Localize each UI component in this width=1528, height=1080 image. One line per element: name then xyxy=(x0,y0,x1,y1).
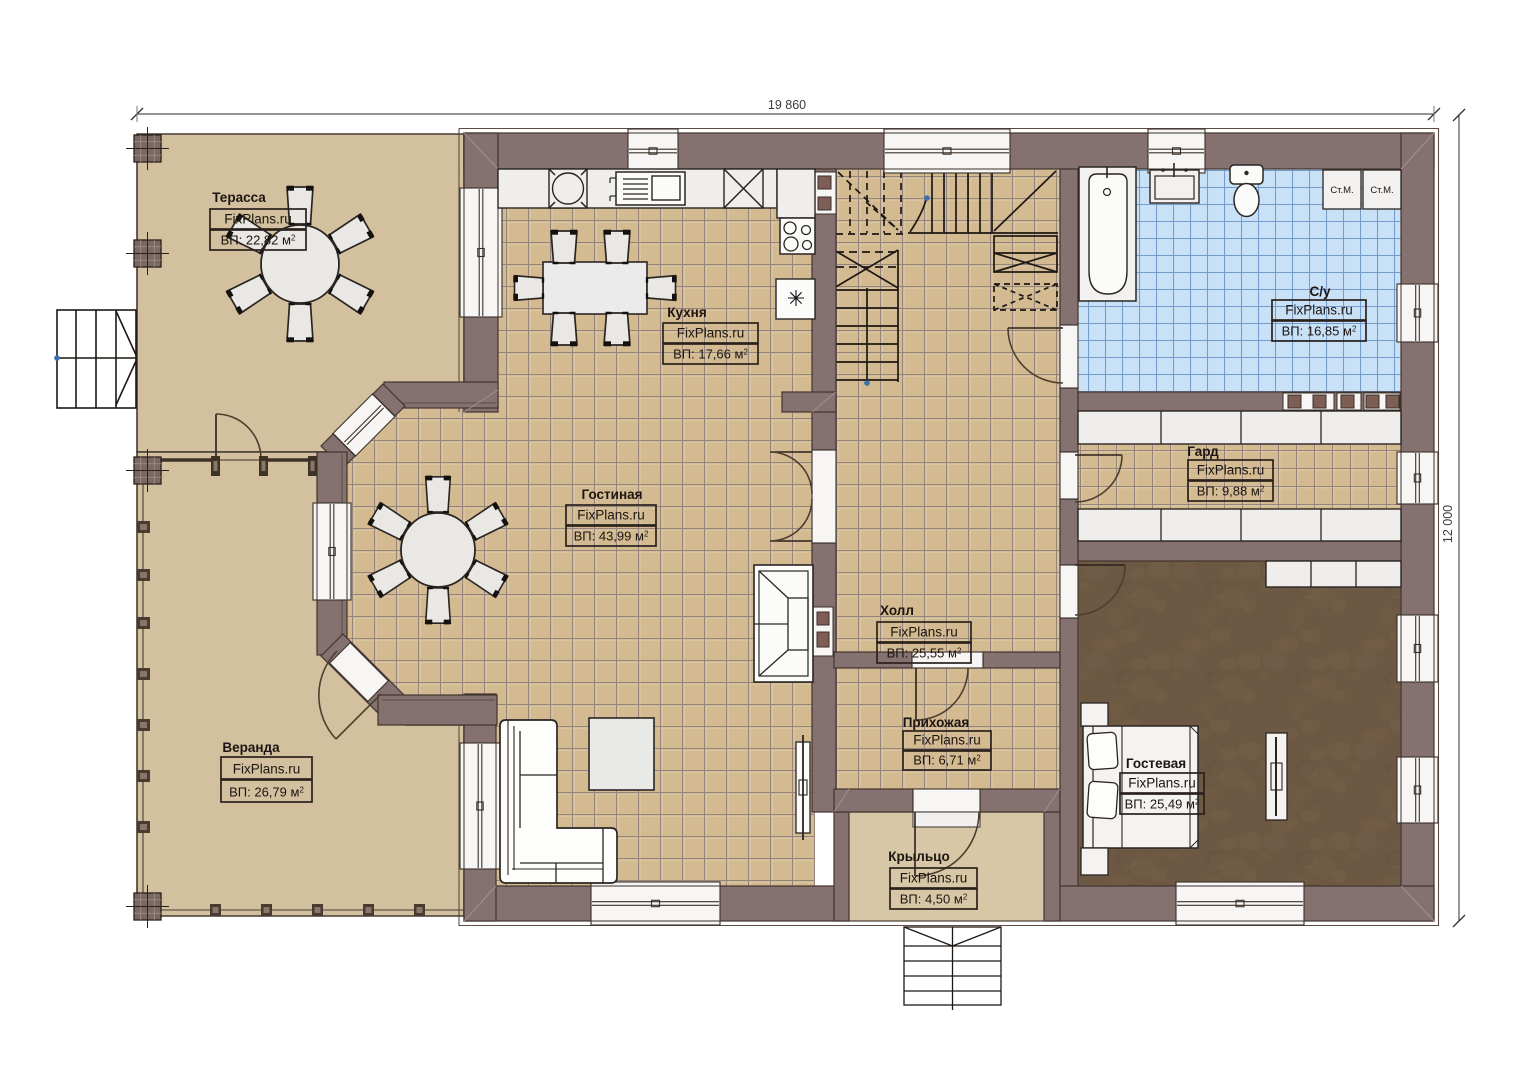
svg-text:ВП: 6,71 м2: ВП: 6,71 м2 xyxy=(913,753,981,768)
svg-text:ВП: 26,79 м2: ВП: 26,79 м2 xyxy=(229,785,304,800)
svg-text:FixPlans.ru: FixPlans.ru xyxy=(1128,776,1196,791)
svg-text:С/у: С/у xyxy=(1309,284,1331,299)
svg-text:Гостиная: Гостиная xyxy=(581,487,642,502)
svg-text:FixPlans.ru: FixPlans.ru xyxy=(900,871,968,886)
svg-text:ВП: 25,55 м2: ВП: 25,55 м2 xyxy=(887,646,962,661)
svg-text:FixPlans.ru: FixPlans.ru xyxy=(224,212,292,227)
svg-text:Веранда: Веранда xyxy=(222,740,280,755)
svg-text:ВП: 4,50 м2: ВП: 4,50 м2 xyxy=(900,892,968,907)
svg-text:Кухня: Кухня xyxy=(667,305,706,320)
svg-text:12 000: 12 000 xyxy=(1441,505,1455,543)
svg-text:Крыльцо: Крыльцо xyxy=(888,849,949,864)
svg-text:✳: ✳ xyxy=(787,286,805,311)
svg-text:FixPlans.ru: FixPlans.ru xyxy=(913,733,981,748)
svg-text:FixPlans.ru: FixPlans.ru xyxy=(677,326,745,341)
svg-text:FixPlans.ru: FixPlans.ru xyxy=(233,762,301,777)
svg-text:FixPlans.ru: FixPlans.ru xyxy=(890,625,958,640)
svg-text:ВП: 43,99 м2: ВП: 43,99 м2 xyxy=(574,529,649,544)
svg-text:ВП: 9,88 м2: ВП: 9,88 м2 xyxy=(1197,484,1265,499)
svg-text:Холл: Холл xyxy=(880,603,914,618)
svg-text:ВП: 22,82 м2: ВП: 22,82 м2 xyxy=(221,233,296,248)
svg-text:Гостевая: Гостевая xyxy=(1126,756,1186,771)
svg-text:Прихожая: Прихожая xyxy=(903,715,970,730)
svg-text:ВП: 25,49 м2: ВП: 25,49 м2 xyxy=(1125,797,1200,812)
svg-text:FixPlans.ru: FixPlans.ru xyxy=(577,508,645,523)
svg-text:FixPlans.ru: FixPlans.ru xyxy=(1285,303,1353,318)
svg-text:Ст.М.: Ст.М. xyxy=(1330,185,1353,196)
svg-text:Терасса: Терасса xyxy=(212,190,266,205)
svg-text:19 860: 19 860 xyxy=(768,98,806,112)
svg-text:Гард: Гард xyxy=(1187,444,1219,459)
svg-text:ВП: 16,85 м2: ВП: 16,85 м2 xyxy=(1282,324,1357,339)
svg-text:FixPlans.ru: FixPlans.ru xyxy=(1197,463,1265,478)
svg-text:ВП: 17,66 м2: ВП: 17,66 м2 xyxy=(673,347,748,362)
svg-text:Ст.М.: Ст.М. xyxy=(1370,185,1393,196)
